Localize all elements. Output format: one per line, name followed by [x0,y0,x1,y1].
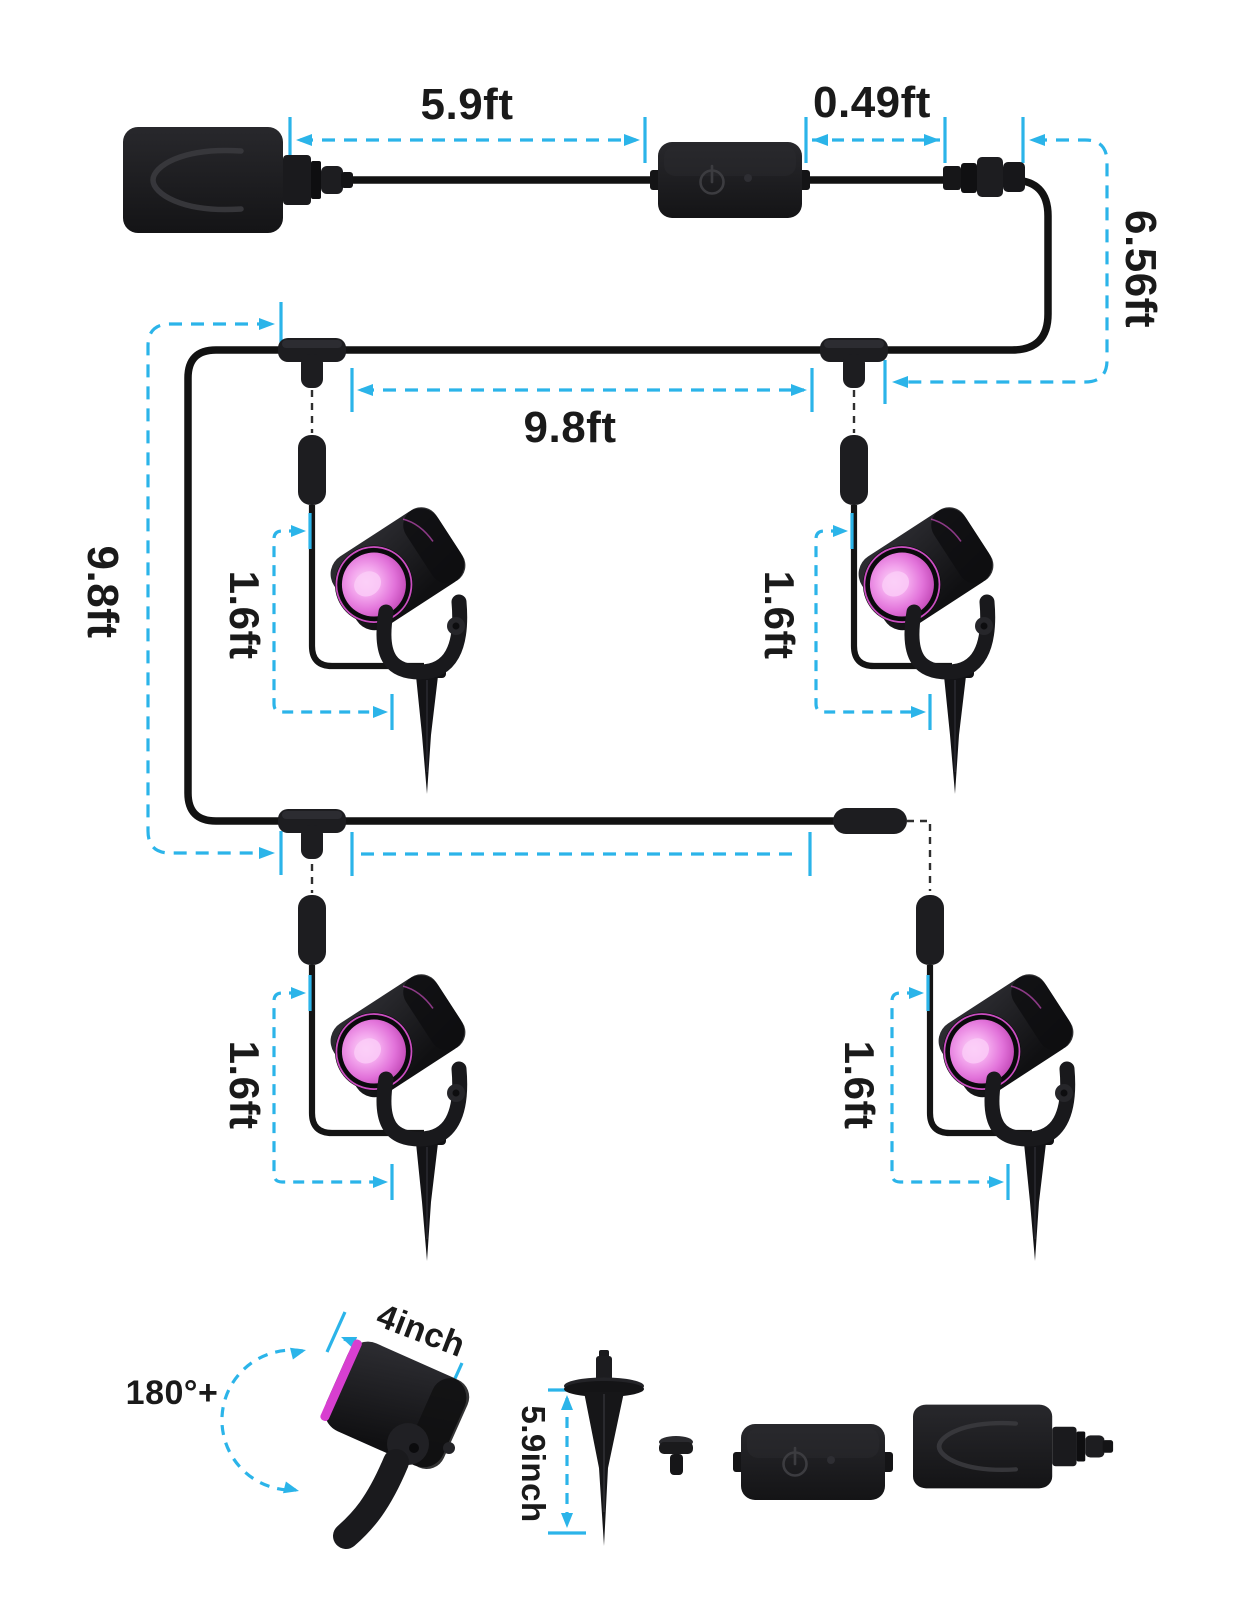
mount-arm [346,1462,396,1536]
spotlight-3 [318,967,472,1261]
cable-coupler [943,157,1025,197]
label-9-8ft-row1: 9.8ft [524,403,617,452]
wiring-diagram-page: 5.9ft 0.49ft 6.56ft 9.8ft 9.8ft 1.6ft 1.… [0,0,1250,1600]
spotlight-2 [846,500,1000,794]
controller-box [650,142,810,218]
t-connector-2 [820,338,888,388]
label-6-56ft: 6.56ft [1116,210,1165,328]
plug-connector-1 [298,435,326,505]
label-5-9inch: 5.9inch [515,1405,552,1522]
plug-connector-2 [840,435,868,505]
side-knob [443,1442,455,1454]
rotating-spotlight-detail [317,1335,475,1536]
label-0-49ft: 0.49ft [813,78,931,127]
controller-detail [733,1424,893,1500]
label-1-6ft-3: 1.6ft [221,1041,268,1130]
power-adapter [123,127,353,233]
dimension-row2-spacing [352,832,810,876]
label-1-6ft-4: 1.6ft [836,1041,883,1130]
thumb-screw [659,1436,693,1475]
label-9-8ft-left: 9.8ft [78,546,127,639]
label-5-9ft: 5.9ft [421,80,514,129]
end-cap-connector [833,808,907,834]
spotlight-4 [926,967,1080,1261]
plug-connector-4 [916,895,944,965]
label-1-6ft-2: 1.6ft [756,571,803,660]
label-rotation-range: 180°+ [126,1374,219,1412]
rotation-arc [222,1350,303,1490]
t-connector-3 [278,809,346,859]
spotlight-1 [318,500,472,794]
dimension-5-9inch [548,1390,586,1533]
label-1-6ft-1: 1.6ft [221,571,268,660]
spotlight-wiring-diagram: 5.9ft 0.49ft 6.56ft 9.8ft 9.8ft 1.6ft 1.… [0,0,1250,1600]
plug-connector-3 [298,895,326,965]
ground-stake-detail [564,1350,644,1546]
t-connector-1 [278,338,346,388]
power-adapter-detail [913,1405,1113,1489]
connector-gap-4 [907,821,930,891]
